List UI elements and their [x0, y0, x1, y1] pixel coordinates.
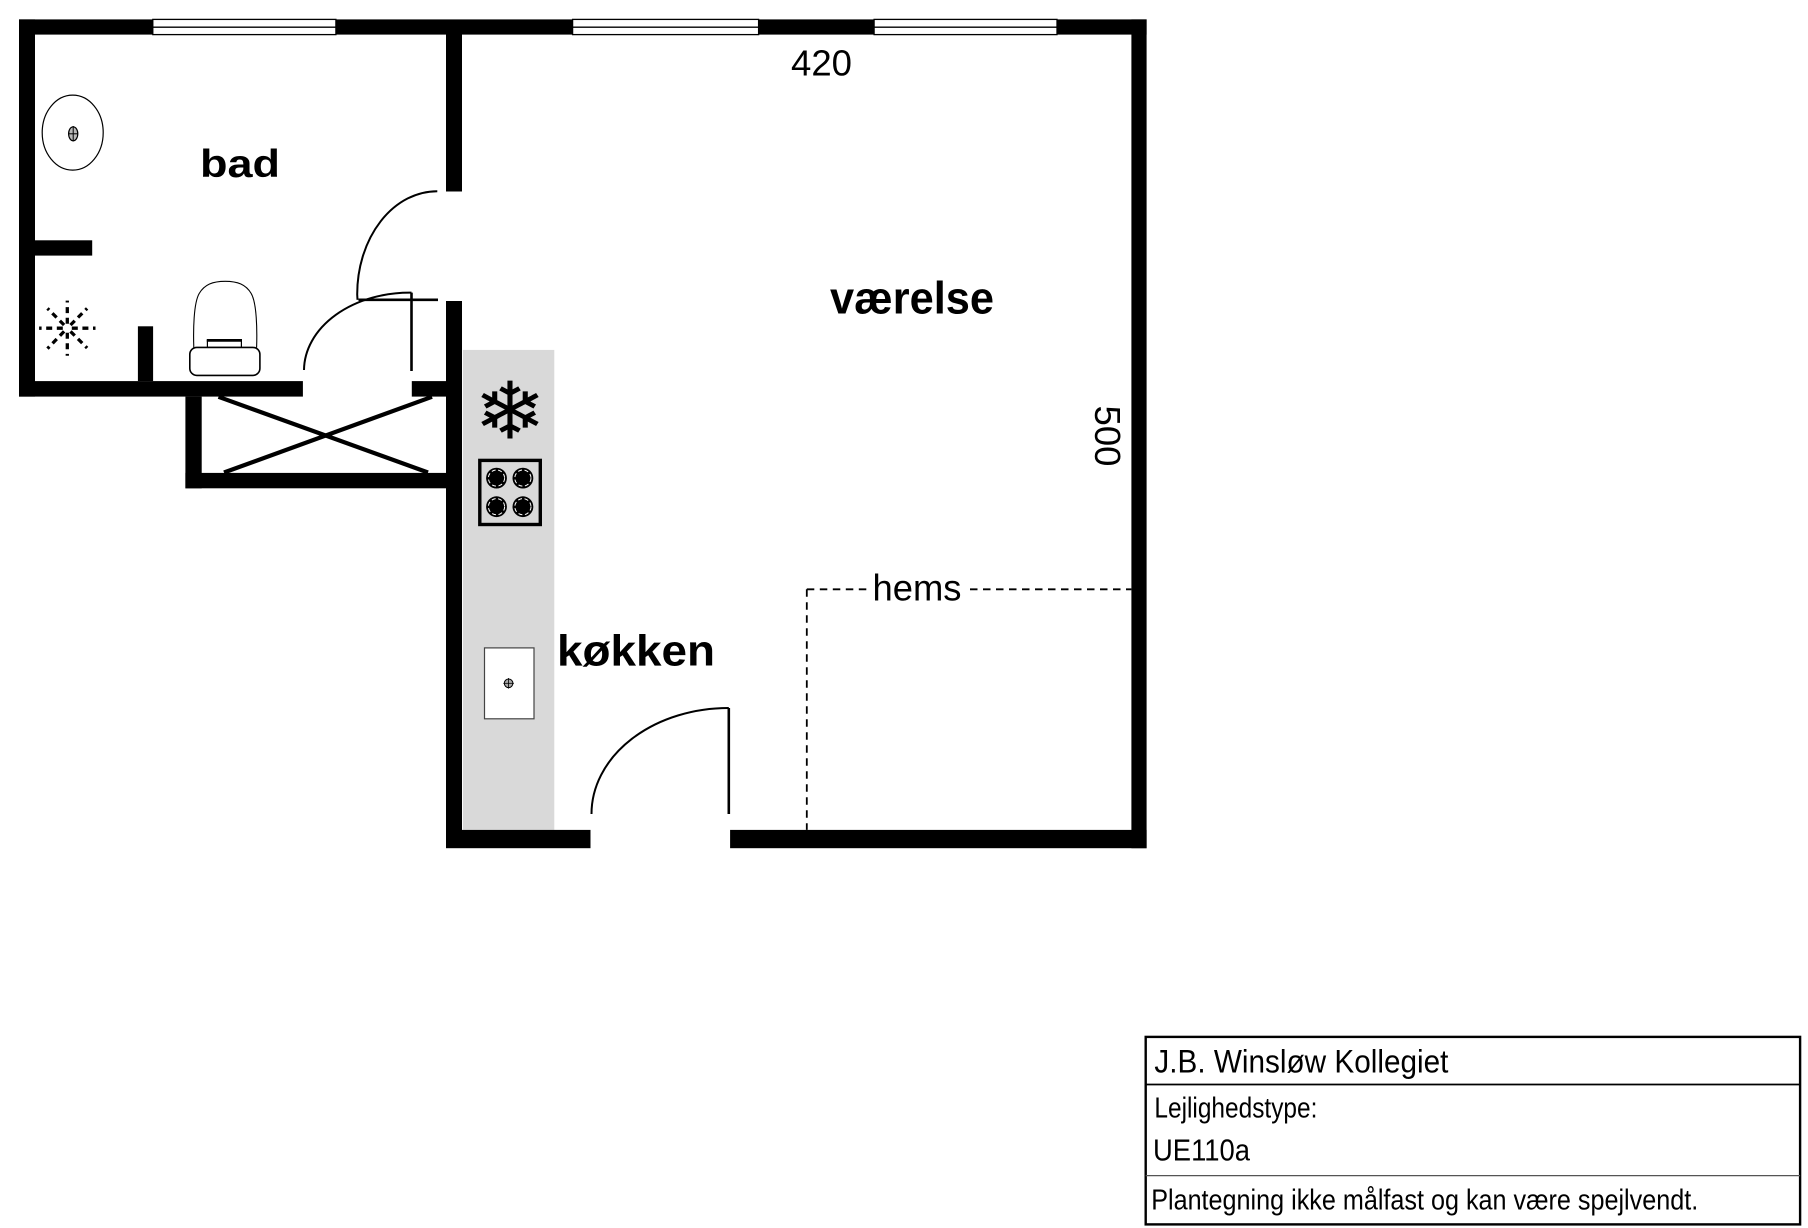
svg-text:køkken: køkken	[557, 626, 715, 675]
svg-text:Plantegning ikke målfast og ka: Plantegning ikke målfast og kan være spe…	[1151, 1185, 1698, 1217]
svg-text:bad: bad	[200, 143, 280, 186]
svg-text:UE110a: UE110a	[1153, 1133, 1251, 1168]
svg-text:420: 420	[791, 42, 852, 83]
svg-text:hems: hems	[873, 568, 962, 609]
svg-text:J.B. Winsløw Kollegiet: J.B. Winsløw Kollegiet	[1154, 1044, 1448, 1080]
svg-text:500: 500	[1087, 406, 1128, 467]
svg-text:Lejlighedstype:: Lejlighedstype:	[1154, 1093, 1317, 1125]
svg-text:værelse: værelse	[830, 273, 994, 324]
